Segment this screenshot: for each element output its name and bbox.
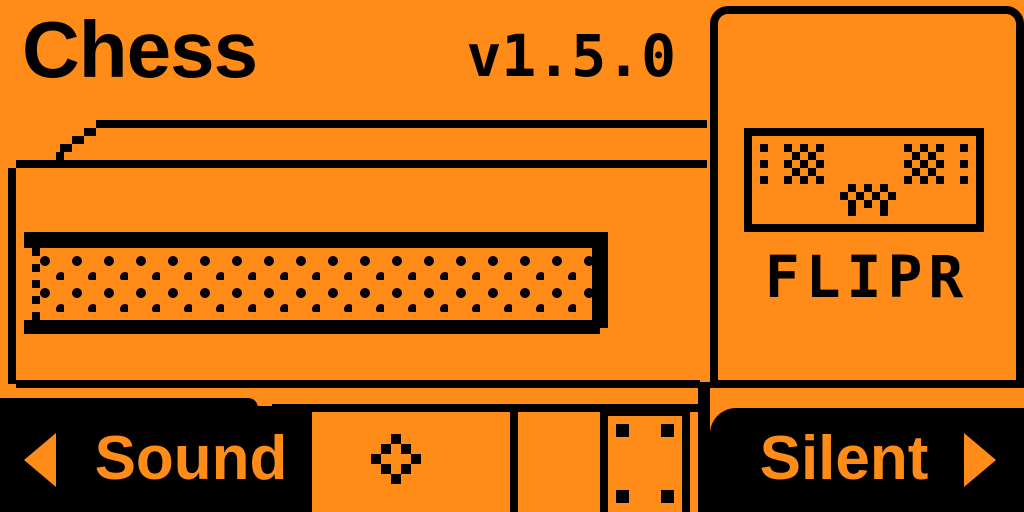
opponent-name: FLIPR (718, 246, 1016, 308)
flipper-chess-app-screen: Chess v1.5.0 FLIPR Sound (0, 0, 1024, 512)
face-right-eye-icon (904, 144, 944, 184)
table-left-edge-line (8, 168, 16, 384)
board-side-top-band (24, 232, 600, 248)
board-side-dashed-edge (32, 248, 40, 320)
left-arrow-icon (24, 433, 56, 487)
board-side-right-cap (592, 232, 608, 328)
right-arrow-icon (964, 433, 996, 487)
silent-button-label: Silent (734, 404, 954, 512)
face-left-dot-column (760, 144, 768, 184)
face-left-eye-icon (784, 144, 824, 184)
screw-dot (616, 424, 629, 437)
table-corner-step (84, 128, 96, 136)
screw-dot (616, 490, 629, 503)
face-mouth-icon (840, 184, 896, 216)
table-far-edge-line (96, 120, 707, 128)
table-corner-step (72, 136, 84, 144)
face-right-dot-column (960, 144, 968, 184)
table-leg-graphic (600, 408, 690, 512)
screw-dot (661, 490, 674, 503)
page-title: Chess (22, 8, 257, 92)
screw-dot (661, 424, 674, 437)
table-corner-step (60, 144, 72, 152)
sound-button-label: Sound (76, 404, 306, 512)
flipr-robot-face-icon (744, 128, 984, 232)
board-side-bottom-band (24, 320, 600, 334)
ok-diamond-icon (371, 434, 421, 484)
table-corner-step (56, 152, 64, 160)
board-side-dither-pattern (32, 248, 592, 320)
app-version: v1.5.0 (400, 24, 676, 88)
floor-line (16, 380, 700, 388)
ok-button-right-border (510, 404, 518, 512)
silent-button-left-tab (698, 382, 710, 512)
table-near-edge-line (16, 160, 707, 168)
